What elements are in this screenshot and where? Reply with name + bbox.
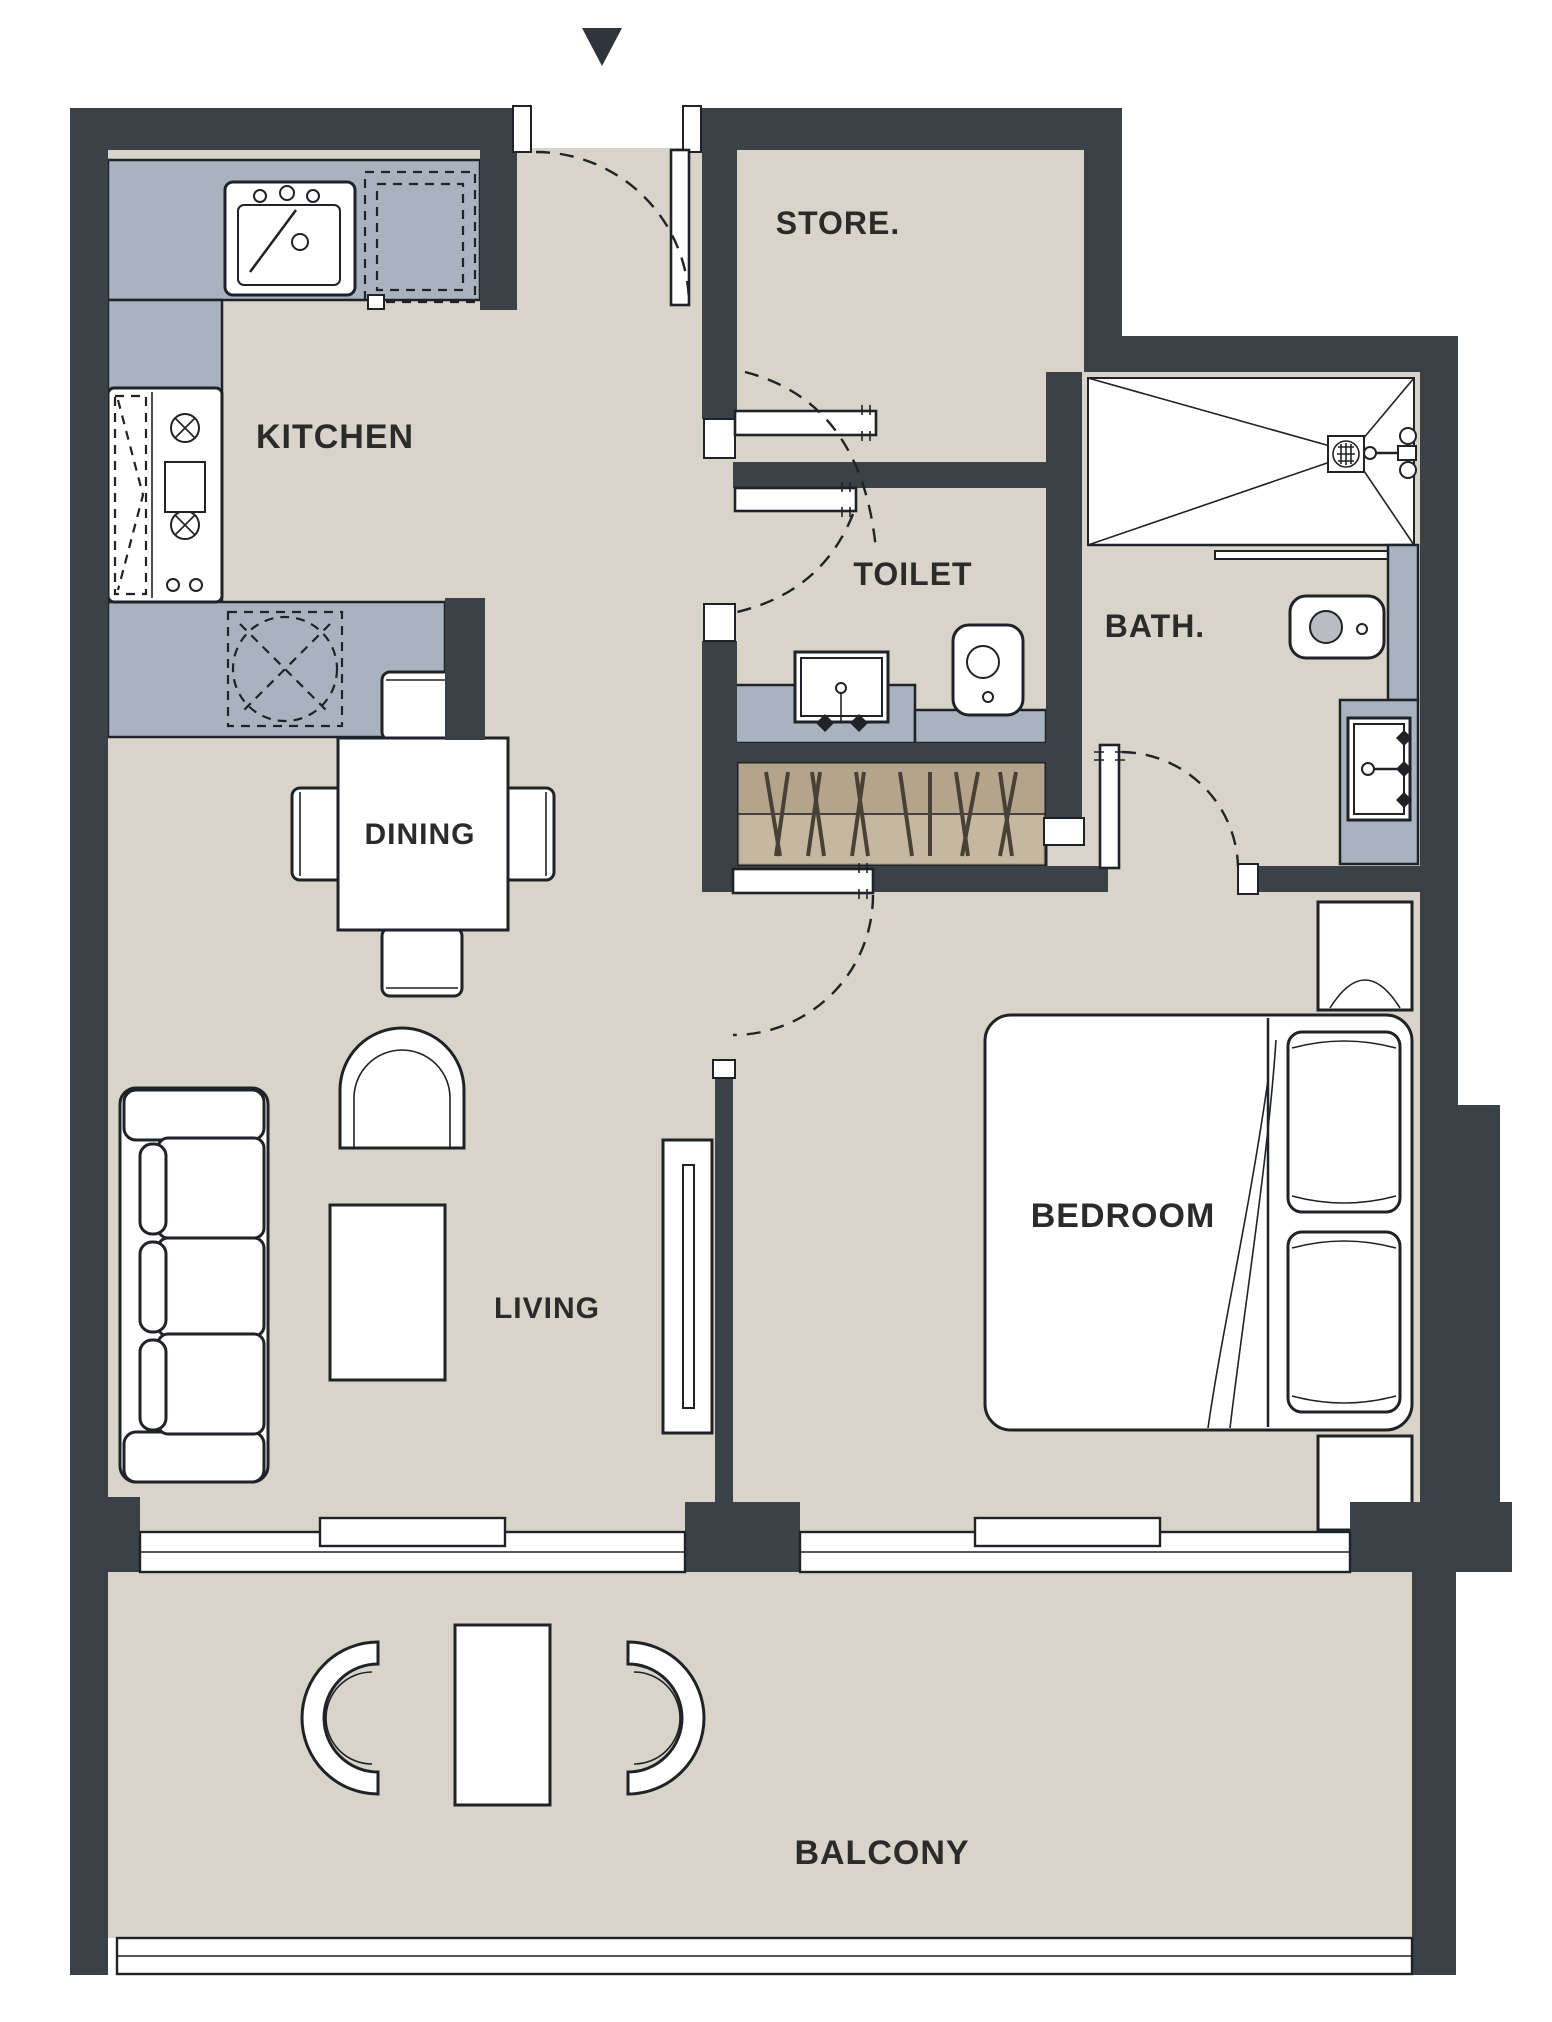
entrance-marker-icon	[582, 28, 622, 66]
dining-chair-bottom	[382, 928, 462, 996]
jamb-toilet	[704, 604, 735, 641]
bath-counter-strip	[1388, 545, 1418, 700]
sofa-seat	[158, 1334, 264, 1434]
sofa-back-cushion	[140, 1340, 166, 1430]
wall-balcony-right	[1412, 1572, 1456, 1975]
balcony-table	[455, 1625, 550, 1805]
kitchen-label: KITCHEN	[256, 418, 414, 456]
sofa-armrest-bottom	[124, 1432, 264, 1482]
wall-stub-kitchen-top	[480, 148, 517, 310]
wall-top-left	[70, 108, 520, 150]
wardrobe	[737, 762, 1046, 866]
balcony-door-bedroom	[975, 1518, 1160, 1546]
wall-stub-kitchen-bottom	[445, 598, 485, 740]
sofa-seat	[158, 1238, 264, 1336]
wall-divider-foot	[685, 1502, 800, 1572]
sofa-seat	[158, 1138, 264, 1238]
wall-top-right	[700, 108, 1122, 150]
sofa-armrest-top	[124, 1090, 264, 1140]
jamb-bath-door	[1238, 864, 1258, 894]
bath-sink-icon	[1348, 718, 1412, 820]
shower-icon	[1088, 378, 1416, 545]
entrance-jamb-right	[683, 106, 701, 152]
kitchen-sink-icon	[225, 182, 355, 295]
floor-plan-drawing: KITCHEN STORE. TOILET BATH. DINING LIVIN…	[0, 0, 1552, 2022]
armchair	[340, 1028, 464, 1148]
jamb-store	[704, 419, 735, 458]
stove-icon	[108, 388, 222, 602]
wall-hall-toilet-left-lower	[702, 641, 737, 892]
toilet-sink-icon	[795, 652, 888, 732]
wall-pier-window-left	[108, 1497, 140, 1572]
toilet-label: TOILET	[853, 556, 972, 592]
wall-right-lower	[1420, 1105, 1500, 1532]
sofa-back-cushion	[140, 1242, 166, 1332]
balcony-door-living	[320, 1518, 505, 1546]
bath-label: BATH.	[1105, 608, 1205, 644]
entrance-jamb-left	[513, 106, 531, 152]
wall-toilet-bath-partition	[1046, 372, 1082, 820]
wall-living-bedroom-divider	[715, 1077, 733, 1502]
store-label: STORE.	[776, 205, 901, 241]
wall-store-toilet-divider	[733, 462, 1080, 488]
toilet-wc-icon	[953, 625, 1023, 715]
wall-left	[70, 108, 108, 1975]
tv-screen	[683, 1165, 694, 1408]
pillow	[1288, 1232, 1400, 1412]
pillow	[1288, 1032, 1400, 1212]
wall-wing-top	[1084, 336, 1458, 372]
sofa-back-cushion	[140, 1144, 166, 1234]
floor-plan-page: KITCHEN STORE. TOILET BATH. DINING LIVIN…	[0, 0, 1552, 2022]
wall-hall-store-left-upper	[702, 148, 737, 419]
nightstand-top	[1318, 902, 1412, 1010]
coffee-table	[330, 1205, 445, 1380]
wall-right-upper	[1420, 336, 1458, 1105]
dining-label: DINING	[365, 818, 476, 851]
wall-corner-block-bottom-right	[1350, 1502, 1512, 1572]
balcony-label: BALCONY	[794, 1834, 969, 1872]
living-label: LIVING	[494, 1292, 600, 1325]
tv-unit	[663, 1140, 712, 1433]
bedroom-label: BEDROOM	[1031, 1197, 1216, 1235]
jamb-bedroom-divider	[713, 1060, 735, 1078]
sofa	[120, 1088, 268, 1482]
store-door-leaf	[735, 411, 876, 435]
bath-wc-icon	[1290, 596, 1384, 658]
wall-toilet-wardrobe-divider	[702, 743, 1080, 762]
shower-screen	[1215, 551, 1414, 559]
jamb-bath-partition	[1044, 818, 1084, 845]
bath-door-leaf	[1100, 745, 1119, 868]
bedroom-door-leaf	[733, 869, 873, 893]
wall-bedroom-top-right	[1240, 866, 1420, 892]
toilet-door-leaf	[735, 488, 856, 511]
